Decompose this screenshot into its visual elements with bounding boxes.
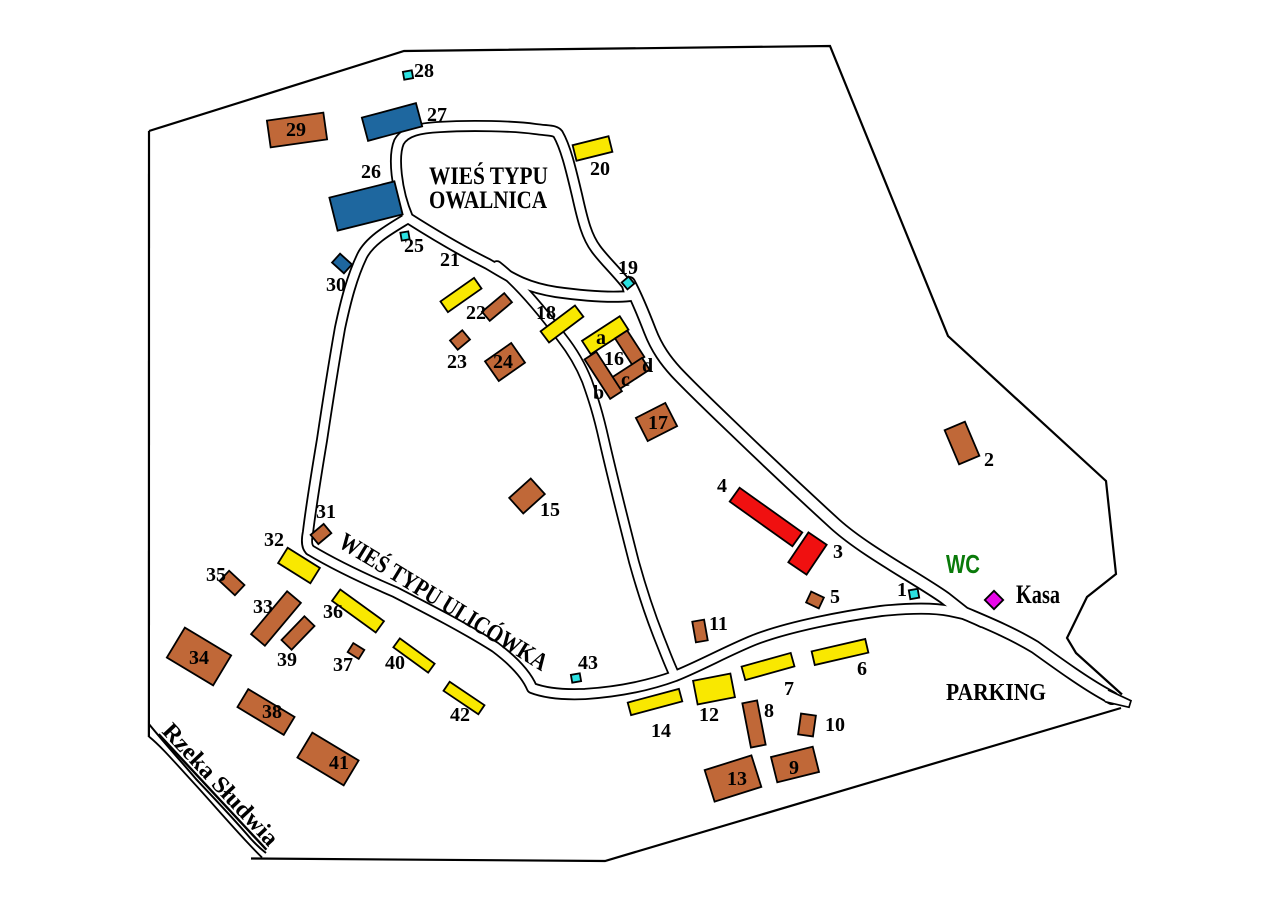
svg-text:d: d — [642, 355, 653, 377]
svg-text:PARKING: PARKING — [946, 680, 1046, 706]
svg-text:12: 12 — [699, 704, 719, 726]
svg-text:14: 14 — [651, 720, 671, 742]
svg-text:4: 4 — [717, 475, 727, 497]
svg-text:c: c — [621, 369, 630, 391]
svg-text:39: 39 — [277, 649, 297, 671]
svg-text:10: 10 — [825, 714, 845, 736]
svg-text:29: 29 — [286, 119, 306, 141]
svg-text:8: 8 — [764, 700, 774, 722]
svg-text:22: 22 — [466, 302, 486, 324]
svg-text:OWALNICA: OWALNICA — [429, 187, 547, 214]
svg-text:43: 43 — [578, 652, 598, 674]
svg-text:17: 17 — [648, 412, 668, 434]
svg-text:30: 30 — [326, 274, 346, 296]
svg-text:Kasa: Kasa — [1016, 580, 1060, 609]
svg-text:32: 32 — [264, 529, 284, 551]
svg-text:35: 35 — [206, 564, 226, 586]
svg-text:16: 16 — [604, 348, 624, 370]
svg-text:18: 18 — [536, 302, 556, 324]
svg-text:1: 1 — [897, 579, 907, 601]
svg-text:34: 34 — [189, 647, 209, 669]
svg-text:7: 7 — [784, 678, 794, 700]
svg-text:11: 11 — [709, 613, 728, 635]
svg-text:21: 21 — [440, 249, 460, 271]
svg-text:38: 38 — [262, 701, 282, 723]
svg-text:15: 15 — [540, 499, 560, 521]
svg-text:19: 19 — [618, 257, 638, 279]
svg-text:23: 23 — [447, 351, 467, 373]
svg-text:27: 27 — [427, 104, 447, 126]
svg-text:3: 3 — [833, 541, 843, 563]
svg-text:33: 33 — [253, 596, 273, 618]
svg-text:28: 28 — [414, 60, 434, 82]
svg-text:WC: WC — [946, 549, 980, 579]
svg-text:a: a — [596, 327, 606, 349]
svg-text:31: 31 — [316, 501, 336, 523]
svg-text:6: 6 — [857, 658, 867, 680]
svg-text:WIEŚ TYPU: WIEŚ TYPU — [429, 162, 548, 190]
svg-text:42: 42 — [450, 704, 470, 726]
svg-text:25: 25 — [404, 235, 424, 257]
svg-text:9: 9 — [789, 757, 799, 779]
svg-text:2: 2 — [984, 449, 994, 471]
svg-text:41: 41 — [329, 752, 349, 774]
svg-text:13: 13 — [727, 768, 747, 790]
svg-text:5: 5 — [830, 586, 840, 608]
svg-text:37: 37 — [333, 654, 353, 676]
svg-text:26: 26 — [361, 161, 381, 183]
svg-text:20: 20 — [590, 158, 610, 180]
svg-text:36: 36 — [323, 601, 343, 623]
svg-text:b: b — [593, 382, 604, 404]
svg-text:40: 40 — [385, 652, 405, 674]
svg-text:24: 24 — [493, 351, 513, 373]
